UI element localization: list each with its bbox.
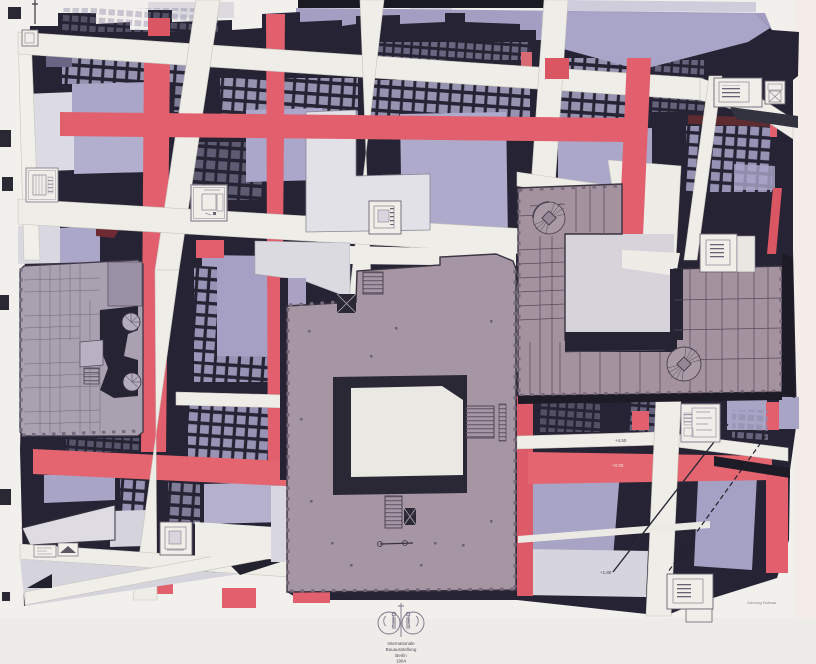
svg-text:+0.00: +0.00 [612, 463, 624, 468]
svg-text:+4.50: +4.50 [615, 438, 627, 443]
svg-text:Zeichnung Koolhaas: Zeichnung Koolhaas [747, 601, 776, 605]
svg-text:+1.80: +1.80 [404, 512, 416, 517]
svg-text:+1.80: +1.80 [600, 570, 612, 575]
svg-text:1984: 1984 [396, 659, 407, 664]
svg-text:Bauausstellung: Bauausstellung [386, 647, 417, 652]
svg-text:Berlin: Berlin [395, 653, 407, 658]
svg-text:Internationale: Internationale [387, 641, 415, 646]
